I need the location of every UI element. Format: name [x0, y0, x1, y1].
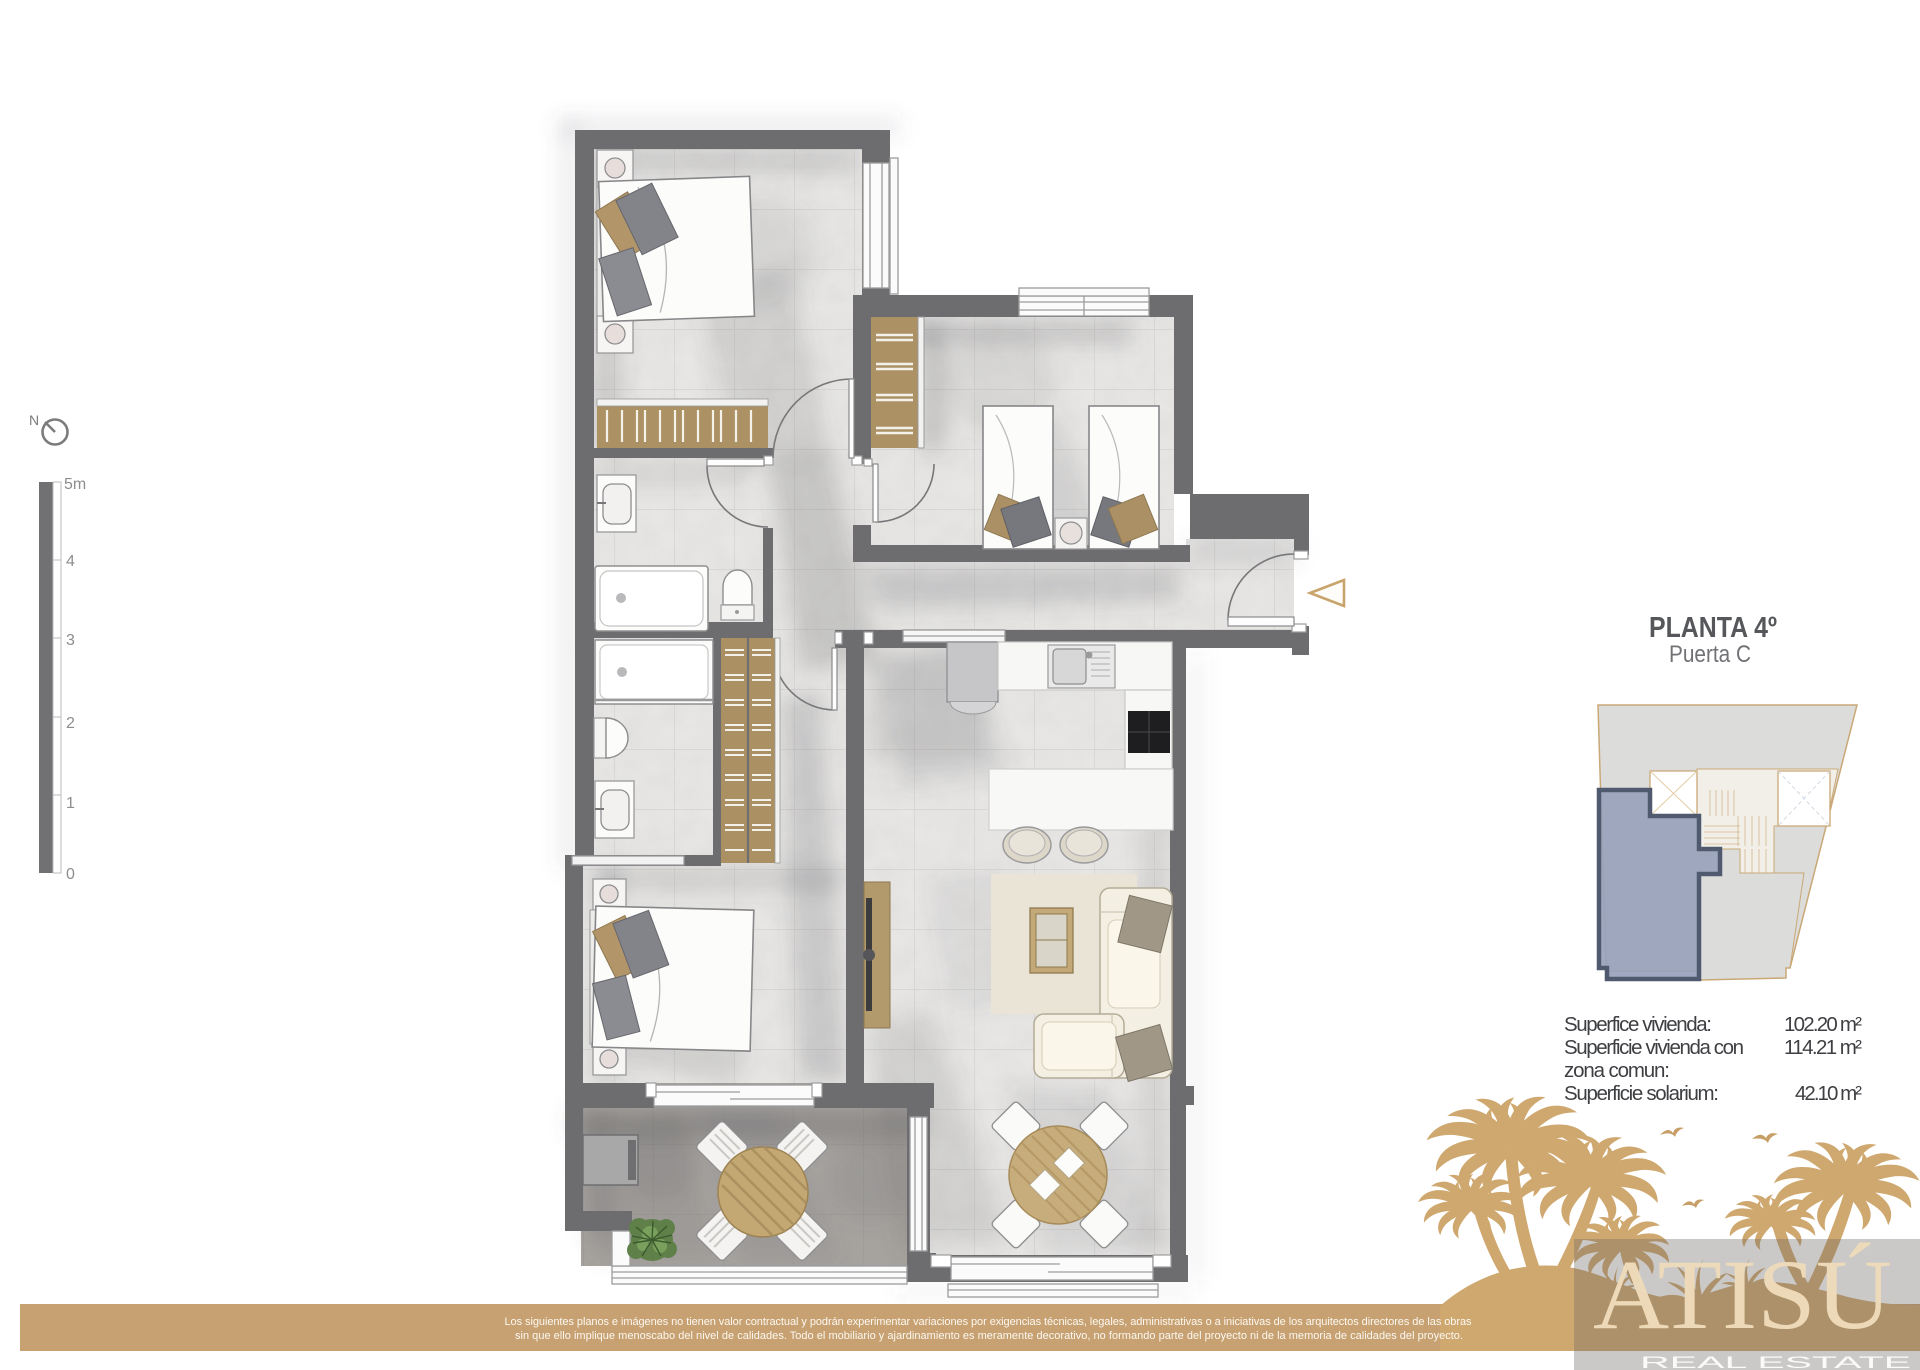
svg-text:3: 3: [66, 632, 75, 649]
svg-text:ATISÚ: ATISÚ: [1593, 1239, 1892, 1350]
svg-text:4: 4: [66, 553, 75, 570]
svg-text:114.21 m²: 114.21 m²: [1784, 1036, 1862, 1059]
svg-text:REAL ESTATE: REAL ESTATE: [1640, 1353, 1911, 1370]
svg-text:Superficie solarium:: Superficie solarium:: [1564, 1082, 1719, 1105]
svg-text:zona comun:: zona comun:: [1564, 1059, 1670, 1082]
svg-text:N: N: [29, 412, 39, 428]
svg-text:Superfice vivienda:: Superfice vivienda:: [1564, 1013, 1712, 1036]
svg-text:sin que ello implique menoscab: sin que ello implique menoscabo del nive…: [515, 1330, 1463, 1342]
svg-text:PLANTA 4º: PLANTA 4º: [1649, 612, 1777, 644]
svg-text:42.10 m²: 42.10 m²: [1795, 1082, 1862, 1105]
svg-text:Puerta C: Puerta C: [1669, 641, 1751, 668]
svg-text:2: 2: [66, 715, 75, 732]
svg-text:1: 1: [66, 795, 75, 812]
svg-text:Superficie vivienda con: Superficie vivienda con: [1564, 1036, 1744, 1059]
svg-text:Los siguientes planos e imágen: Los siguientes planos e imágenes no tien…: [505, 1316, 1473, 1328]
svg-text:0: 0: [66, 866, 75, 883]
svg-text:5m: 5m: [64, 476, 86, 493]
svg-text:102.20 m²: 102.20 m²: [1784, 1013, 1862, 1036]
